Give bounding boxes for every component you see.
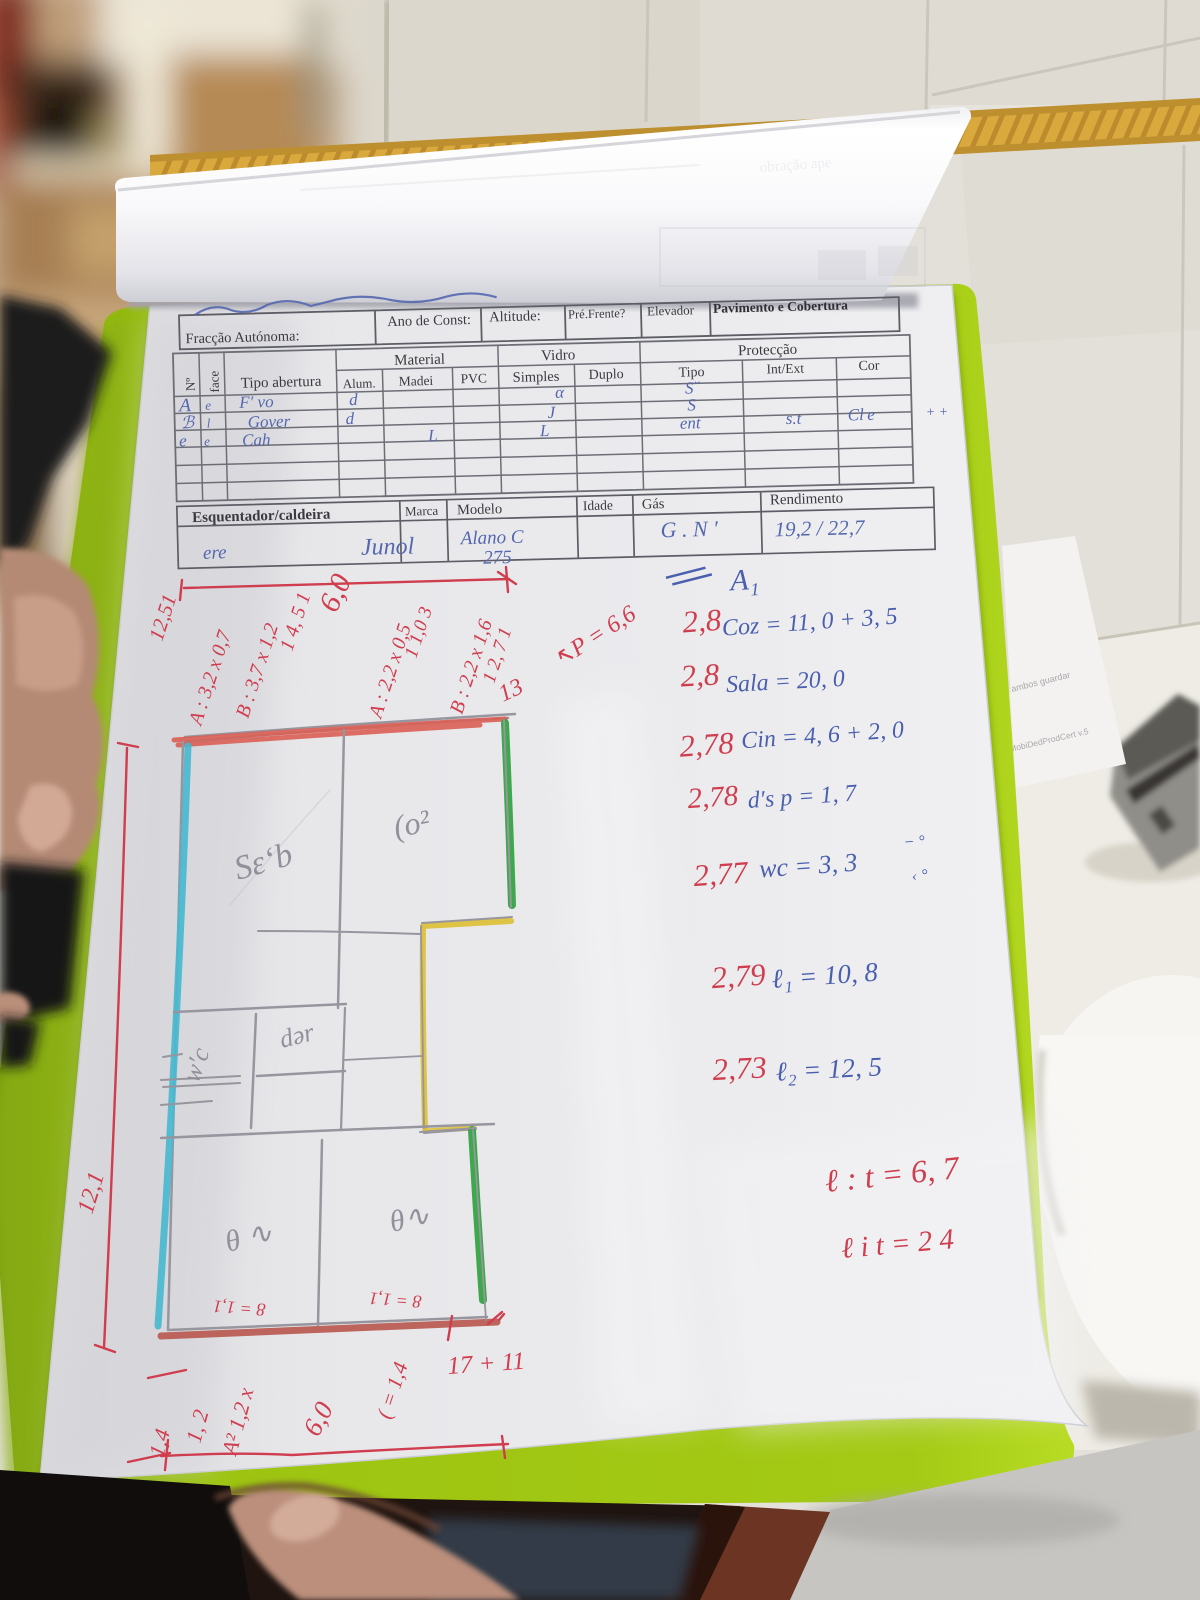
svg-text:+ +: + + [926,405,949,421]
svg-text:Material: Material [394,352,445,369]
svg-text:2,73: 2,73 [712,1049,768,1087]
svg-text:Modelo: Modelo [457,501,502,518]
svg-text:L: L [427,426,438,445]
svg-text:Cl e: Cl e [847,405,875,425]
svg-text:d: d [349,390,358,409]
svg-text:L: L [539,421,550,440]
svg-text:Pré.Frente?: Pré.Frente? [568,306,626,321]
svg-text:ℬ: ℬ [180,413,195,432]
svg-text:Tipo abertura: Tipo abertura [241,374,322,392]
svg-text:2,78: 2,78 [678,725,735,764]
svg-text:2,79: 2,79 [710,956,767,995]
svg-text:ent: ent [680,413,703,433]
svg-text:Rendimento: Rendimento [770,491,844,509]
svg-text:2,8: 2,8 [681,602,723,640]
svg-text:G . N ′: G . N ′ [660,516,719,542]
svg-text:Duplo: Duplo [588,367,623,383]
svg-text:8 = 1,1: 8 = 1,1 [212,1296,266,1320]
svg-text:ere: ere [203,542,227,564]
svg-text:Ano de Const:: Ano de Const: [387,312,471,330]
svg-text:Marca: Marca [405,503,439,519]
svg-text:‹ °: ‹ ° [911,867,928,885]
svg-text:PVC: PVC [460,371,487,387]
svg-text:Altitude:: Altitude: [489,308,541,325]
svg-text:275: 275 [483,547,512,569]
svg-text:2,77: 2,77 [692,854,750,893]
svg-text:s.t: s.t [786,409,803,428]
svg-text:e: e [179,431,187,450]
svg-text:Vidro: Vidro [541,347,576,364]
svg-text:Alum.: Alum. [343,375,376,391]
svg-text:ℓ₂ = 12, 5: ℓ₂ = 12, 5 [775,1051,883,1087]
svg-text:Nº: Nº [183,377,198,391]
svg-text:Elevador: Elevador [647,302,695,318]
svg-text:Junol: Junol [361,533,415,560]
svg-text:e: e [204,434,210,449]
svg-text:Simples: Simples [512,369,559,386]
svg-text:S: S [687,395,696,414]
svg-text:Fracção Autónoma:: Fracção Autónoma: [185,328,299,347]
svg-text:α: α [555,383,565,402]
svg-text:F′ vo: F′ vo [238,392,274,412]
svg-text:Gás: Gás [642,496,665,513]
svg-text:Protecção: Protecção [738,342,798,359]
svg-text:Idade: Idade [583,497,613,513]
svg-text:19,2 / 22,7: 19,2 / 22,7 [774,515,866,541]
svg-text:Cor: Cor [858,359,880,375]
svg-text:Madei: Madei [399,373,434,389]
svg-text:8 = 1,1: 8 = 1,1 [368,1288,422,1312]
svg-text:Int/Ext: Int/Ext [766,361,804,377]
svg-text:d: d [345,409,354,428]
svg-text:2,78: 2,78 [686,780,739,815]
svg-text:2,8: 2,8 [680,656,721,693]
svg-text:Alano C: Alano C [458,527,524,550]
svg-text:− °: − ° [903,833,926,851]
svg-text:Cah: Cah [242,430,271,450]
svg-text:face: face [206,370,222,392]
svg-text:e: e [205,398,211,413]
svg-text:Gover: Gover [247,412,290,432]
svg-text:A₁: A₁ [727,563,759,598]
svg-text:17 + 11: 17 + 11 [447,1348,526,1380]
